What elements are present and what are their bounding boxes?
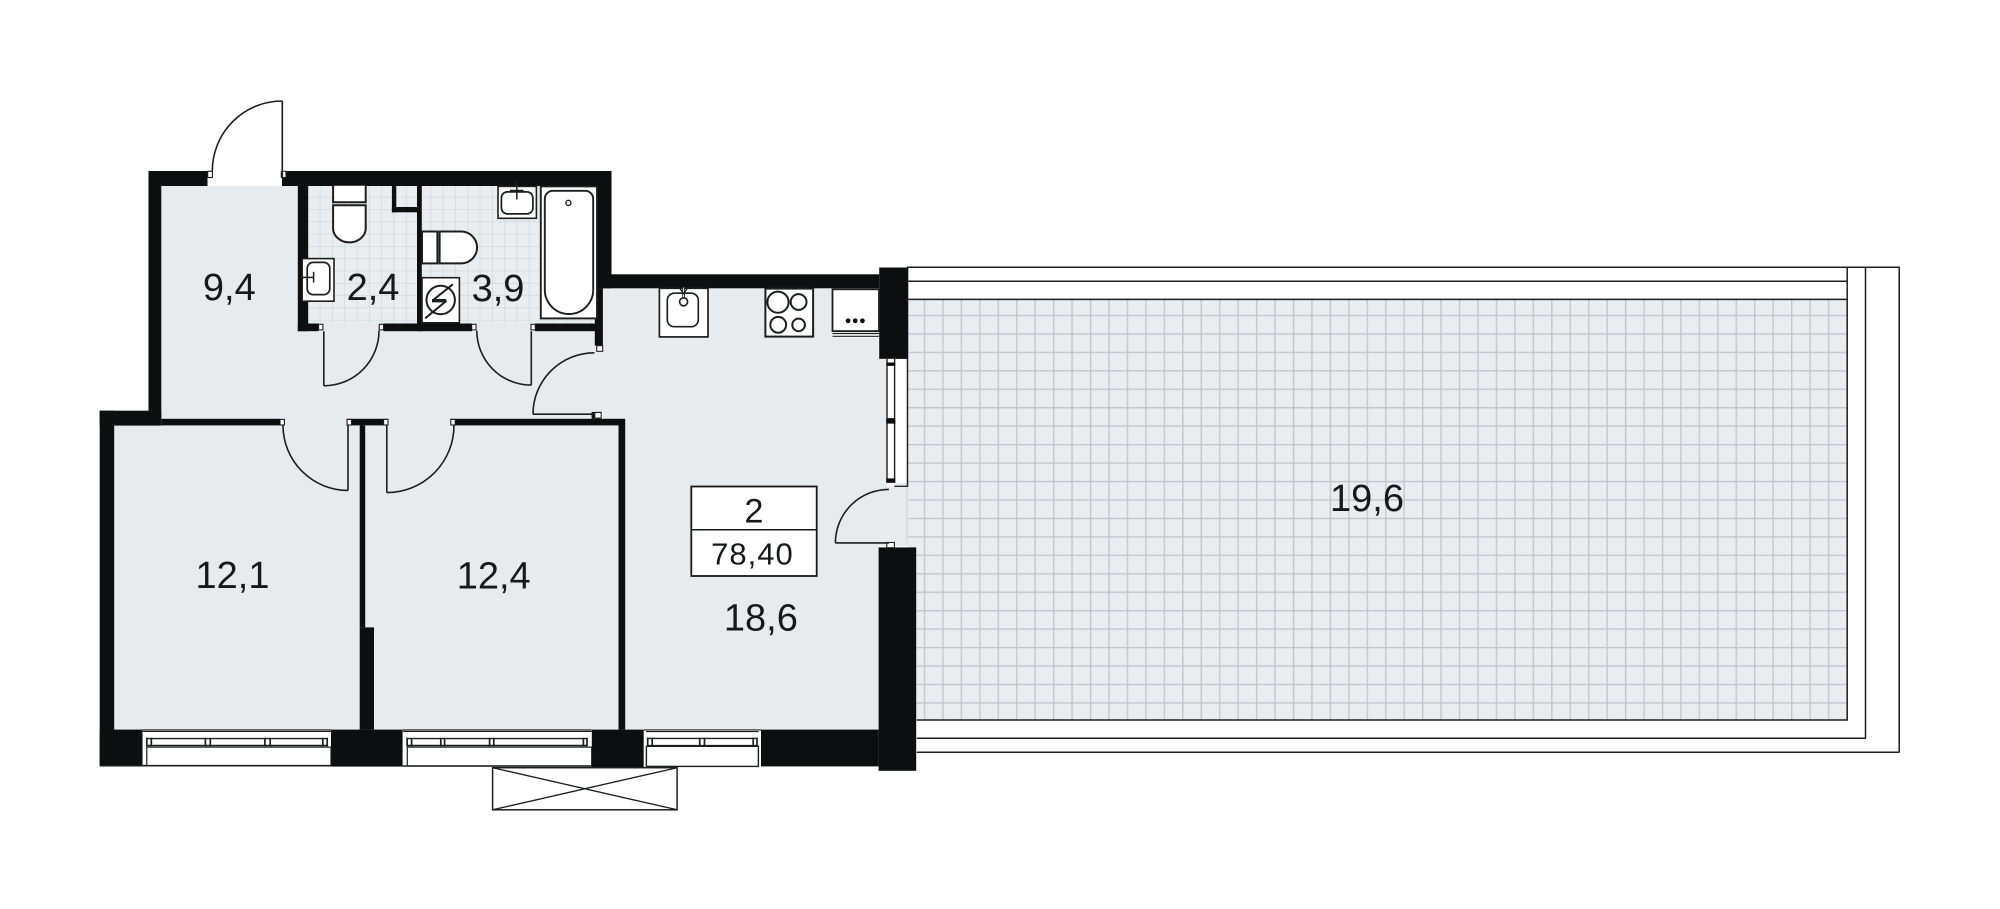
- svg-text:2,4: 2,4: [347, 267, 400, 309]
- svg-text:19,6: 19,6: [1330, 478, 1404, 520]
- svg-text:9,4: 9,4: [203, 267, 256, 309]
- svg-text:2: 2: [744, 493, 763, 531]
- svg-text:78,40: 78,40: [711, 537, 794, 572]
- svg-text:18,6: 18,6: [724, 597, 798, 639]
- svg-text:12,1: 12,1: [196, 555, 270, 597]
- svg-text:12,4: 12,4: [457, 556, 531, 598]
- svg-text:3,9: 3,9: [472, 268, 525, 310]
